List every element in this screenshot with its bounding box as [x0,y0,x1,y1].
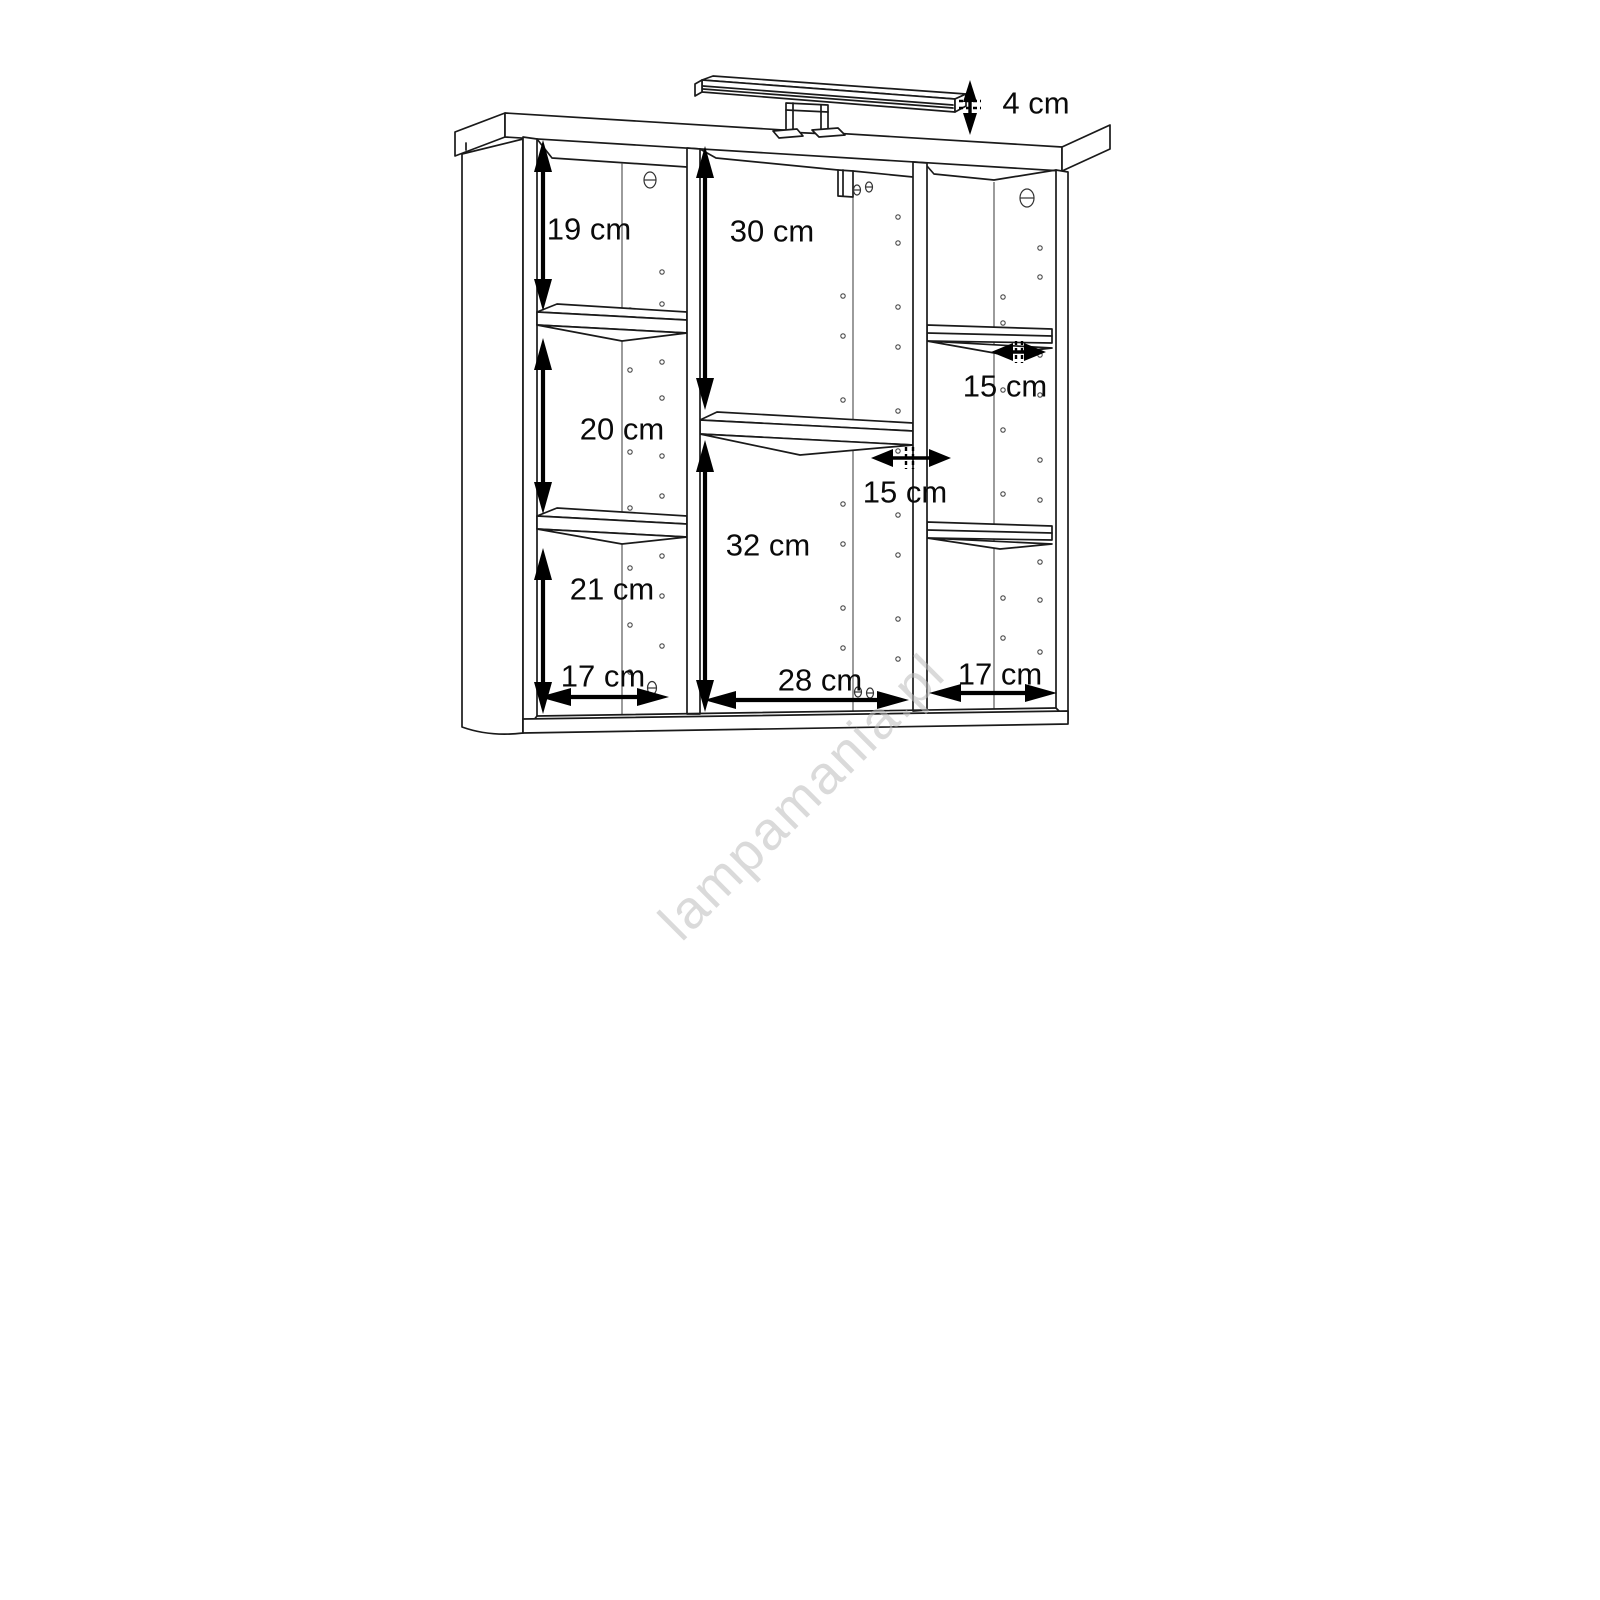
dimension-label-left-top: 19 cm [547,212,631,247]
dimension-label-center-shelf-depth: 15 cm [863,475,947,510]
left-side-panel [462,137,537,734]
dimension-label-center-bottom: 32 cm [726,528,810,563]
dimension-label-right-shelf-depth: 15 cm [963,369,1047,404]
dimension-arrow-15cm-center [871,447,951,469]
cabinet [455,76,1110,734]
cabinet-top-panel [455,113,1110,171]
diagram-canvas: lampamania.pl 4 cm 19 cm 30 cm 20 c [0,0,1600,1600]
wall-bracket [838,170,853,197]
right-side-panel [1056,170,1068,720]
cabinet-dimension-drawing: lampamania.pl 4 cm 19 cm 30 cm 20 c [0,0,1600,1600]
cabinet-bottom-panel [523,708,1068,733]
right-column-shelves [927,325,1052,549]
divider-left [687,148,700,714]
dimension-label-lamp-height: 4 cm [1002,86,1069,121]
dimension-annotations: 4 cm 19 cm 30 cm 20 cm 15 cm [534,80,1070,714]
dimension-label-center-width: 28 cm [778,663,862,698]
center-shelf [700,412,913,455]
dimension-label-left-width: 17 cm [561,659,645,694]
dimension-label-left-bottom: 21 cm [570,572,654,607]
dimension-arrow-4cm [959,80,981,135]
dimension-label-center-top: 30 cm [730,214,814,249]
divider-right [913,162,927,711]
dimension-label-left-middle: 20 cm [580,412,664,447]
dimension-label-right-width: 17 cm [958,657,1042,692]
